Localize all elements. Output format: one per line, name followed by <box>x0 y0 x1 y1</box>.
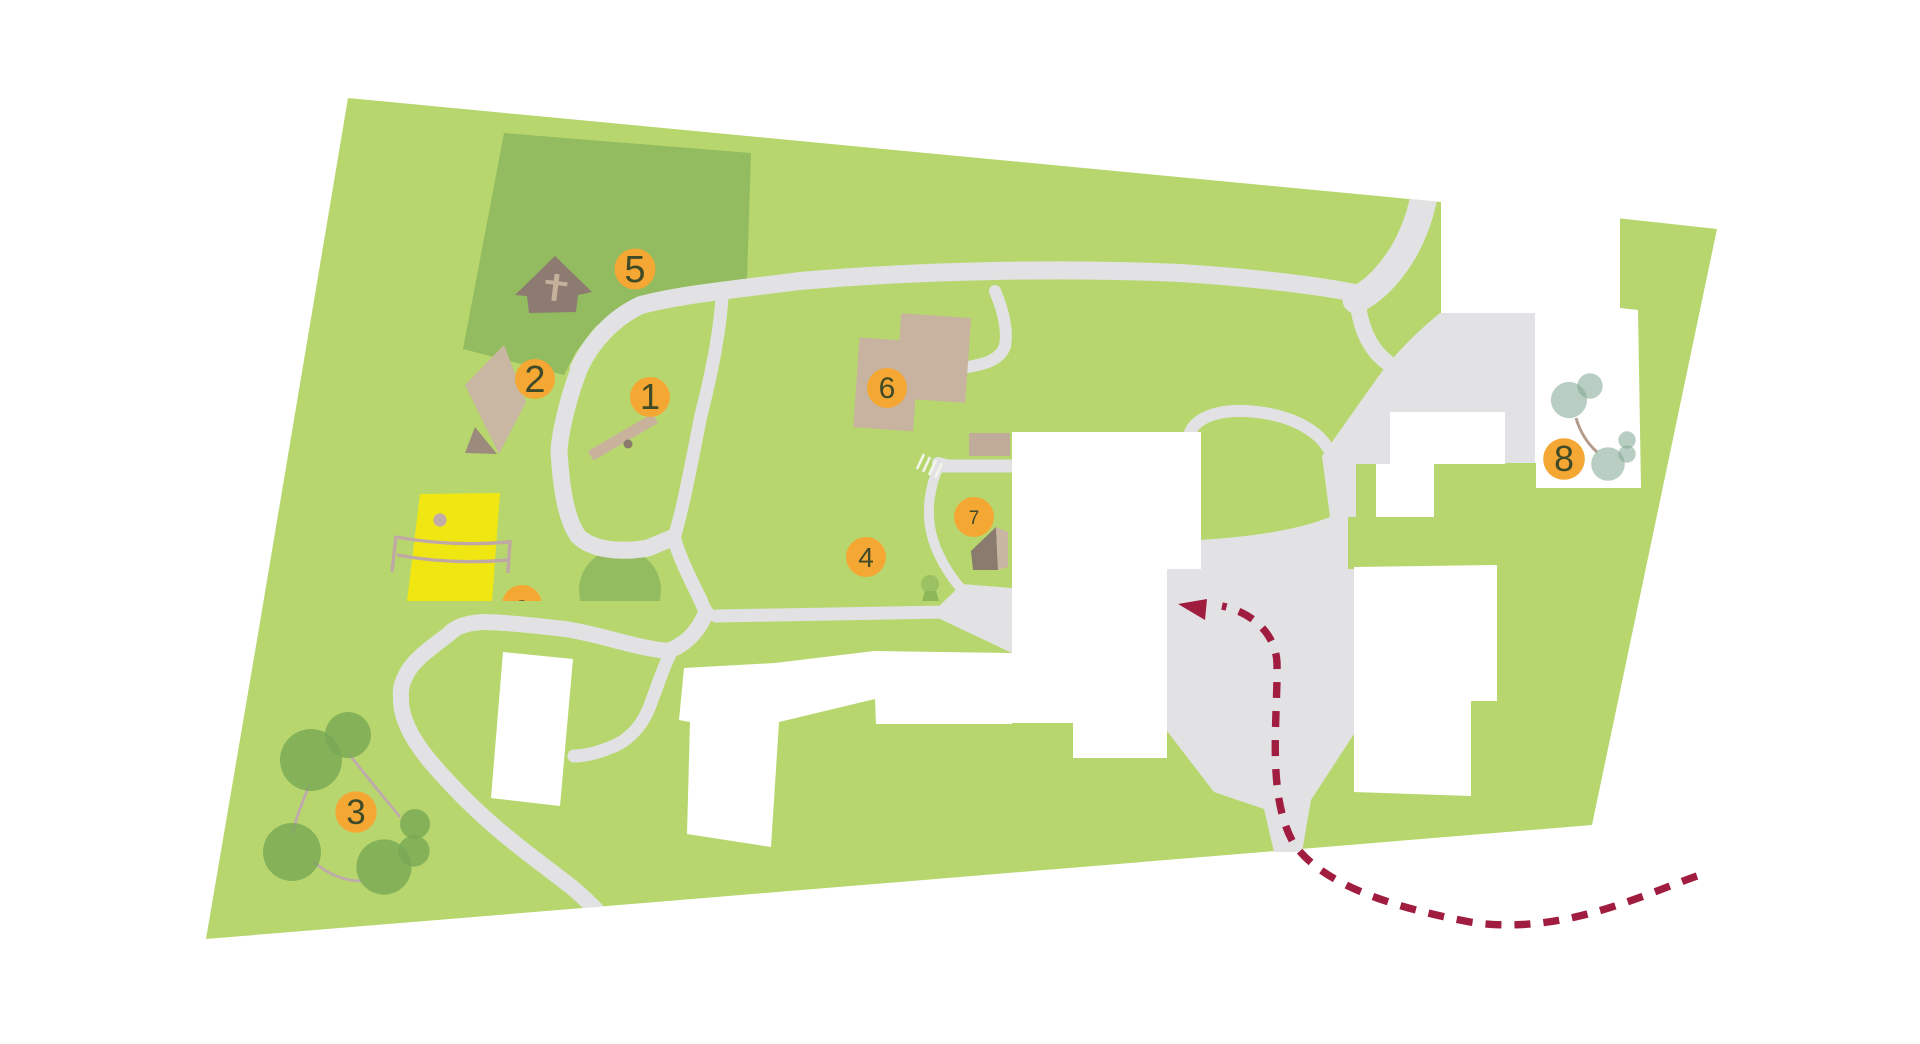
svg-text:5: 5 <box>624 249 645 291</box>
svg-text:6: 6 <box>879 372 896 405</box>
svg-text:1: 1 <box>640 376 660 417</box>
svg-text:2: 2 <box>524 359 545 401</box>
svg-text:8: 8 <box>1554 438 1574 479</box>
svg-text:4: 4 <box>858 542 874 573</box>
svg-text:3: 3 <box>346 793 365 832</box>
svg-text:7: 7 <box>969 508 980 529</box>
